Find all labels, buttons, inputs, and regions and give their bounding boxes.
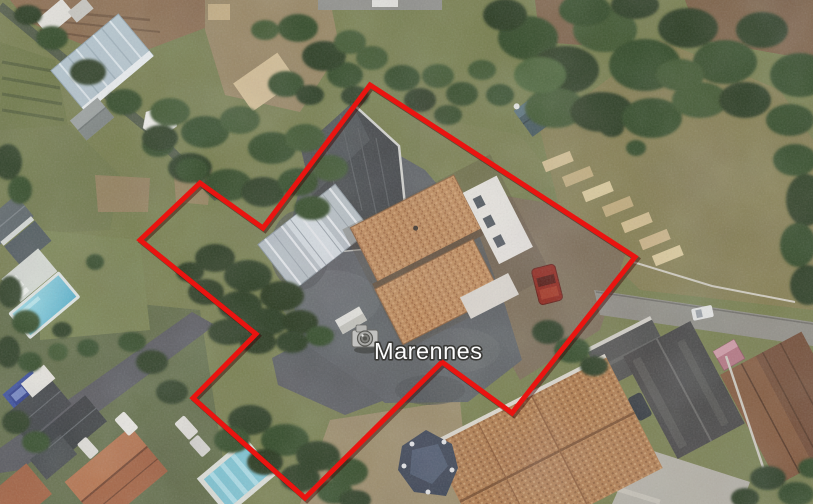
place-label-text: Marennes bbox=[374, 338, 483, 364]
map-canvas: Marennes bbox=[0, 0, 813, 504]
satellite-map-view[interactable]: Marennes bbox=[0, 0, 813, 504]
haze-overlay bbox=[0, 0, 813, 504]
